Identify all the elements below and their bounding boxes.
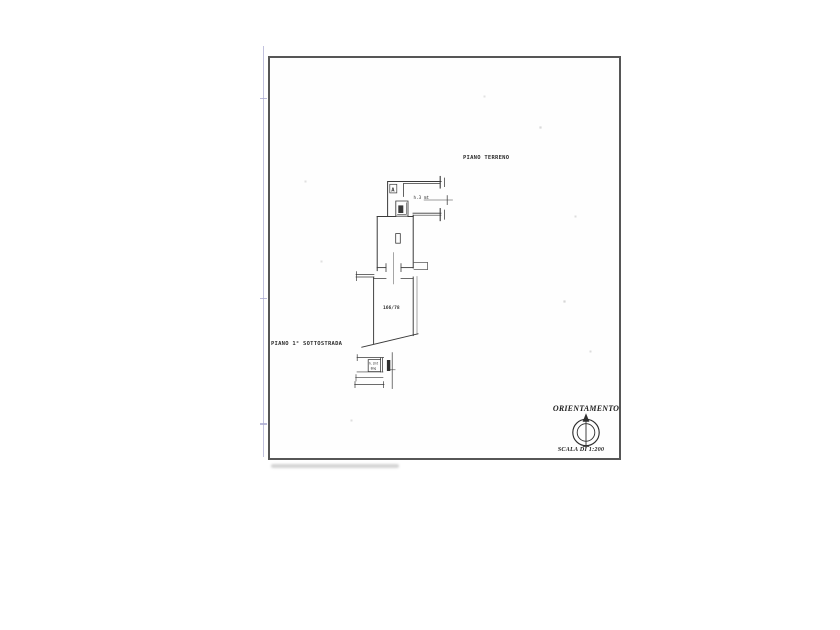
height-annotation: h.3 mt <box>414 195 430 201</box>
scale-label: SCALA DI 1:200 <box>548 446 614 453</box>
compass-icon <box>573 413 599 448</box>
north-arrowhead-icon <box>583 413 590 422</box>
basement-plan <box>355 353 396 389</box>
right-exterior-step <box>414 262 428 269</box>
basement-right-wall <box>381 358 383 372</box>
basement-height-annotation: h.2mt <box>369 361 378 365</box>
floor-plan-drawing: A h.3 mt 166/78 h.2mt 8mq <box>0 0 840 630</box>
scanned-plan-page: PIANO TERRENO PIANO 1° SOTTOSTRADA <box>0 0 840 630</box>
basement-step-line <box>356 375 383 381</box>
parcel-number-annotation: 166/78 <box>383 305 400 311</box>
closet-fixture <box>398 205 403 213</box>
stair-section <box>387 360 390 371</box>
left-landing <box>356 272 374 281</box>
ground-floor-plan <box>356 177 453 348</box>
pillar <box>396 234 401 244</box>
lower-room-slanted-wall <box>362 334 418 347</box>
basement-area-annotation: 8mq <box>371 366 377 370</box>
dimension-line-bottom <box>355 382 384 388</box>
orientation-label: ORIENTAMENTO <box>550 404 622 413</box>
